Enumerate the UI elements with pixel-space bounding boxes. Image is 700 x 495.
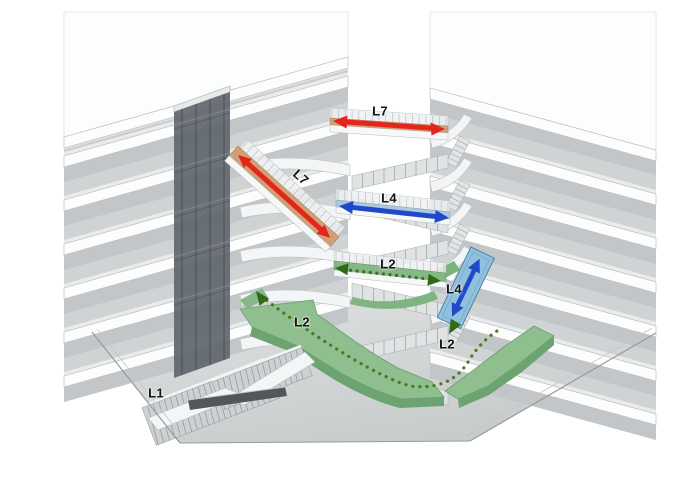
circulation-diagram: L7 L7 L4 L4 L2 L2 L2 L1: [0, 0, 700, 495]
label-l2-right-walkway: L2: [439, 337, 455, 352]
label-l2-bridge: L2: [380, 257, 396, 272]
label-l1-grand-stair: L1: [148, 386, 164, 401]
axonometric-scene: [0, 0, 700, 495]
label-l2-left-walkway: L2: [294, 315, 310, 330]
right-building: [430, 12, 656, 440]
label-l4-bridge: L4: [381, 191, 397, 206]
label-l7-upper-bridge: L7: [372, 104, 388, 119]
elevator-core: [174, 86, 230, 378]
label-l4-escalator: L4: [446, 282, 462, 297]
